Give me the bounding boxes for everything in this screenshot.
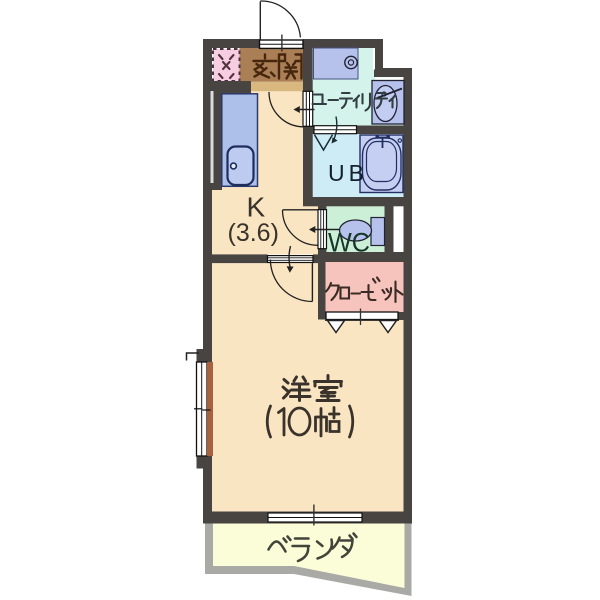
svg-text:WC: WC <box>328 228 370 258</box>
svg-text:UB: UB <box>328 160 368 186</box>
svg-text:K: K <box>247 192 266 223</box>
svg-text:(3.6): (3.6) <box>228 219 279 247</box>
